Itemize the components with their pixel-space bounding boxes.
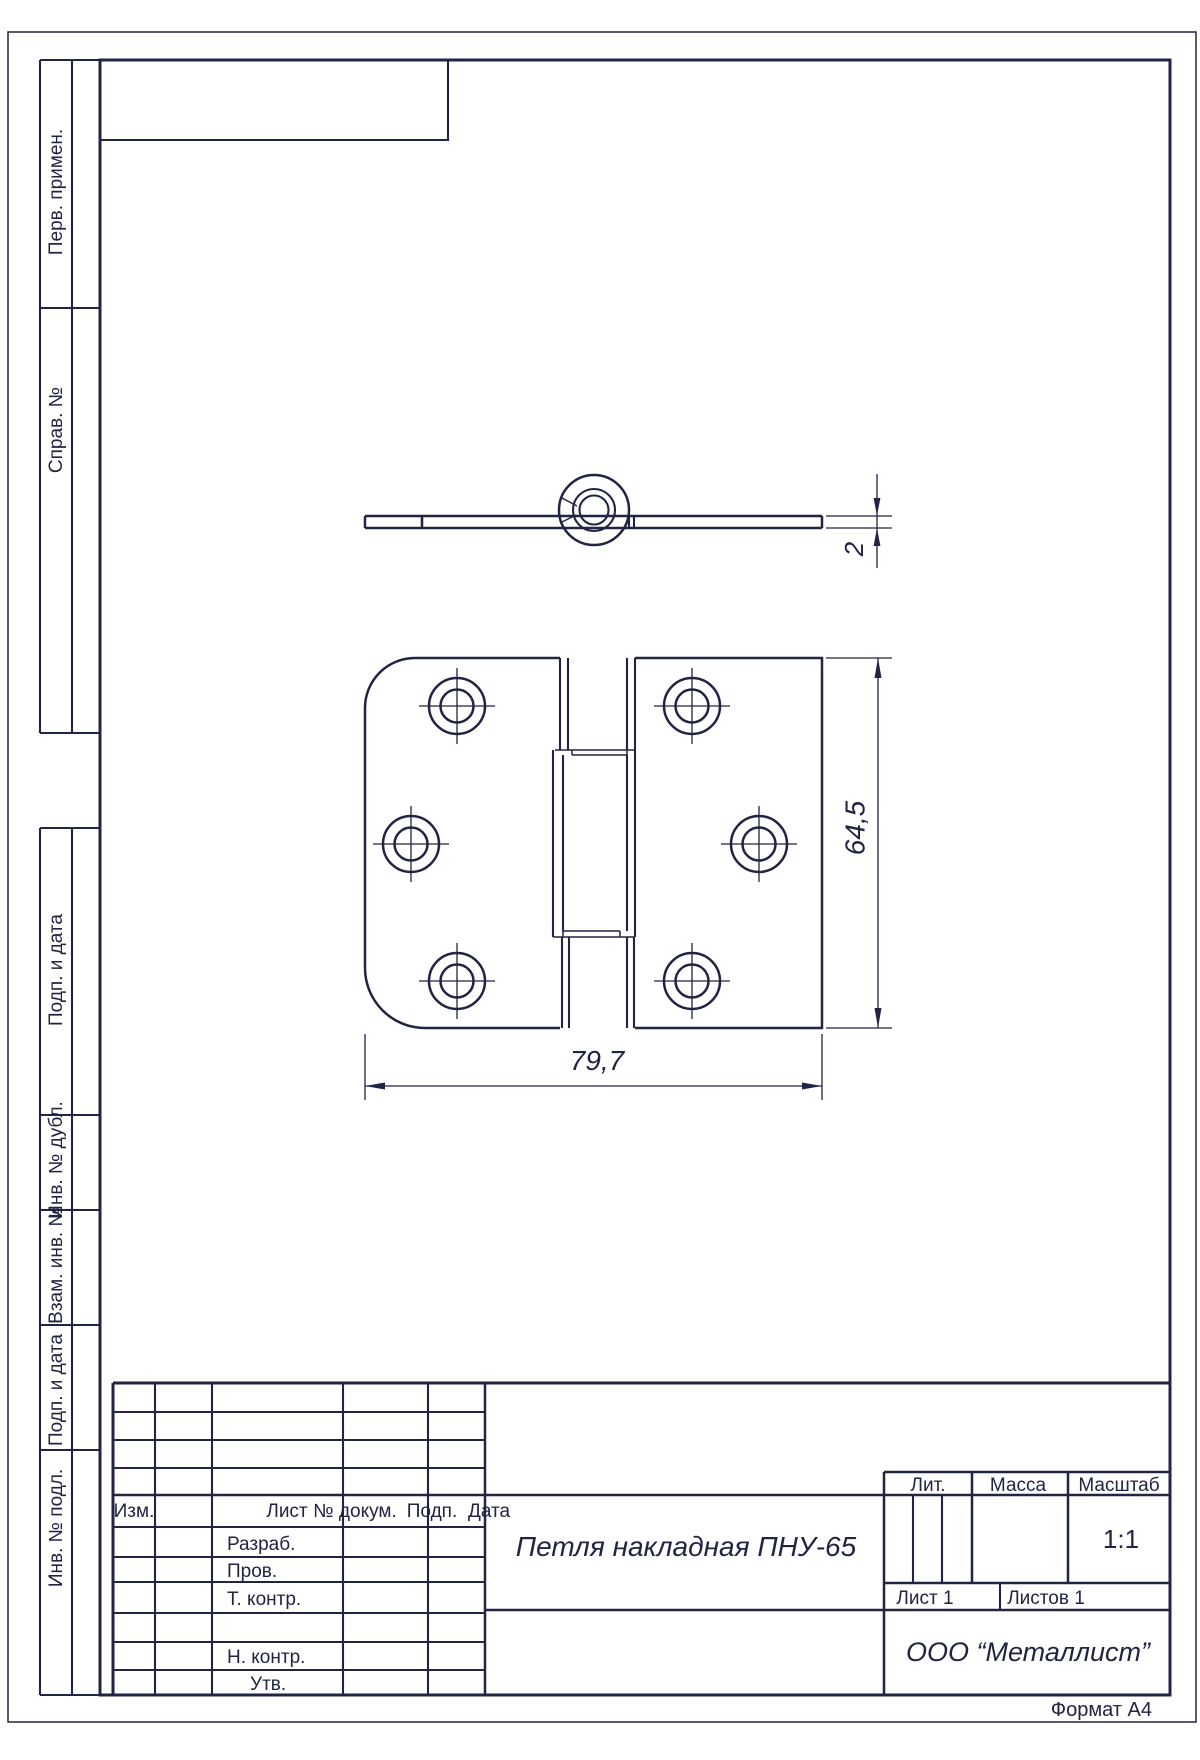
massa-label: Масса — [990, 1475, 1047, 1496]
margin-label-vzam-inv: Взам. инв. № — [46, 1206, 67, 1324]
dimension-thickness: 2 — [826, 474, 892, 568]
col-data: Дата — [468, 1501, 511, 1522]
margin-label-perv-primen: Перв. примен. — [46, 129, 67, 255]
top-stub-cell — [100, 60, 448, 140]
col-dokum: № докум. — [313, 1501, 396, 1522]
row-t-kontr: Т. контр. — [227, 1589, 301, 1610]
drawing-sheet: Перв. примен. Справ. № Подп. и дата Инв.… — [0, 0, 1200, 1760]
sheet-number: Лист 1 — [896, 1588, 953, 1609]
title-block: Изм. Лист № докум. Подп. Дата Разраб. Пр… — [113, 1383, 1170, 1695]
leaf-end-ticks — [629, 516, 634, 528]
hinge-leaf-edge-profile — [365, 516, 822, 528]
blueprint-canvas: Перв. примен. Справ. № Подп. и дата Инв.… — [0, 0, 1200, 1760]
left-margin-columns: Перв. примен. Справ. № Подп. и дата Инв.… — [40, 60, 100, 1695]
screw-hole — [654, 668, 730, 744]
row-prov: Пров. — [227, 1561, 277, 1582]
col-list: Лист — [266, 1501, 308, 1522]
dimension-width: 79,7 — [365, 1034, 822, 1100]
right-leaf-outline — [635, 658, 822, 1028]
lit-label: Лит. — [911, 1475, 946, 1496]
row-utv: Утв. — [250, 1674, 286, 1695]
row-n-kontr: Н. контр. — [227, 1647, 305, 1668]
margin-label-podp-data-2: Подп. и дата — [46, 1334, 67, 1446]
screw-hole — [654, 943, 730, 1019]
dimension-height: 64,5 — [826, 658, 892, 1028]
sheets-total: Листов 1 — [1007, 1588, 1085, 1609]
masshtab-label: Масштаб — [1078, 1475, 1159, 1496]
hinge-side-view: 2 — [365, 474, 892, 568]
format-note: Формат А4 — [1051, 1699, 1152, 1721]
screw-hole — [373, 806, 449, 882]
dim-width-value: 79,7 — [570, 1045, 626, 1076]
screw-hole — [419, 668, 495, 744]
center-seam — [553, 658, 635, 1028]
col-izm: Изм. — [114, 1501, 155, 1522]
document-title: Петля накладная ПНУ-65 — [516, 1531, 857, 1562]
row-razrab: Разраб. — [227, 1534, 295, 1555]
hinge-pin-bore — [580, 496, 609, 525]
dim-height-value: 64,5 — [839, 800, 870, 855]
company-name: ООО “Металлист” — [906, 1637, 1151, 1667]
col-podp: Подп. — [407, 1501, 457, 1522]
dim-thickness-value: 2 — [839, 541, 869, 557]
margin-label-sprav-no: Справ. № — [46, 387, 67, 473]
screw-hole — [721, 806, 797, 882]
margin-label-podp-data-1: Подп. и дата — [46, 914, 67, 1026]
screw-hole — [419, 943, 495, 1019]
hinge-front-view: 64,5 79,7 — [365, 658, 892, 1100]
margin-label-inv-podl: Инв. № подл. — [46, 1469, 67, 1587]
scale-value: 1:1 — [1103, 1524, 1139, 1554]
margin-label-inv-dubl: Инв. № дубл. — [46, 1101, 67, 1219]
hinge-knuckle-outer — [559, 475, 629, 545]
